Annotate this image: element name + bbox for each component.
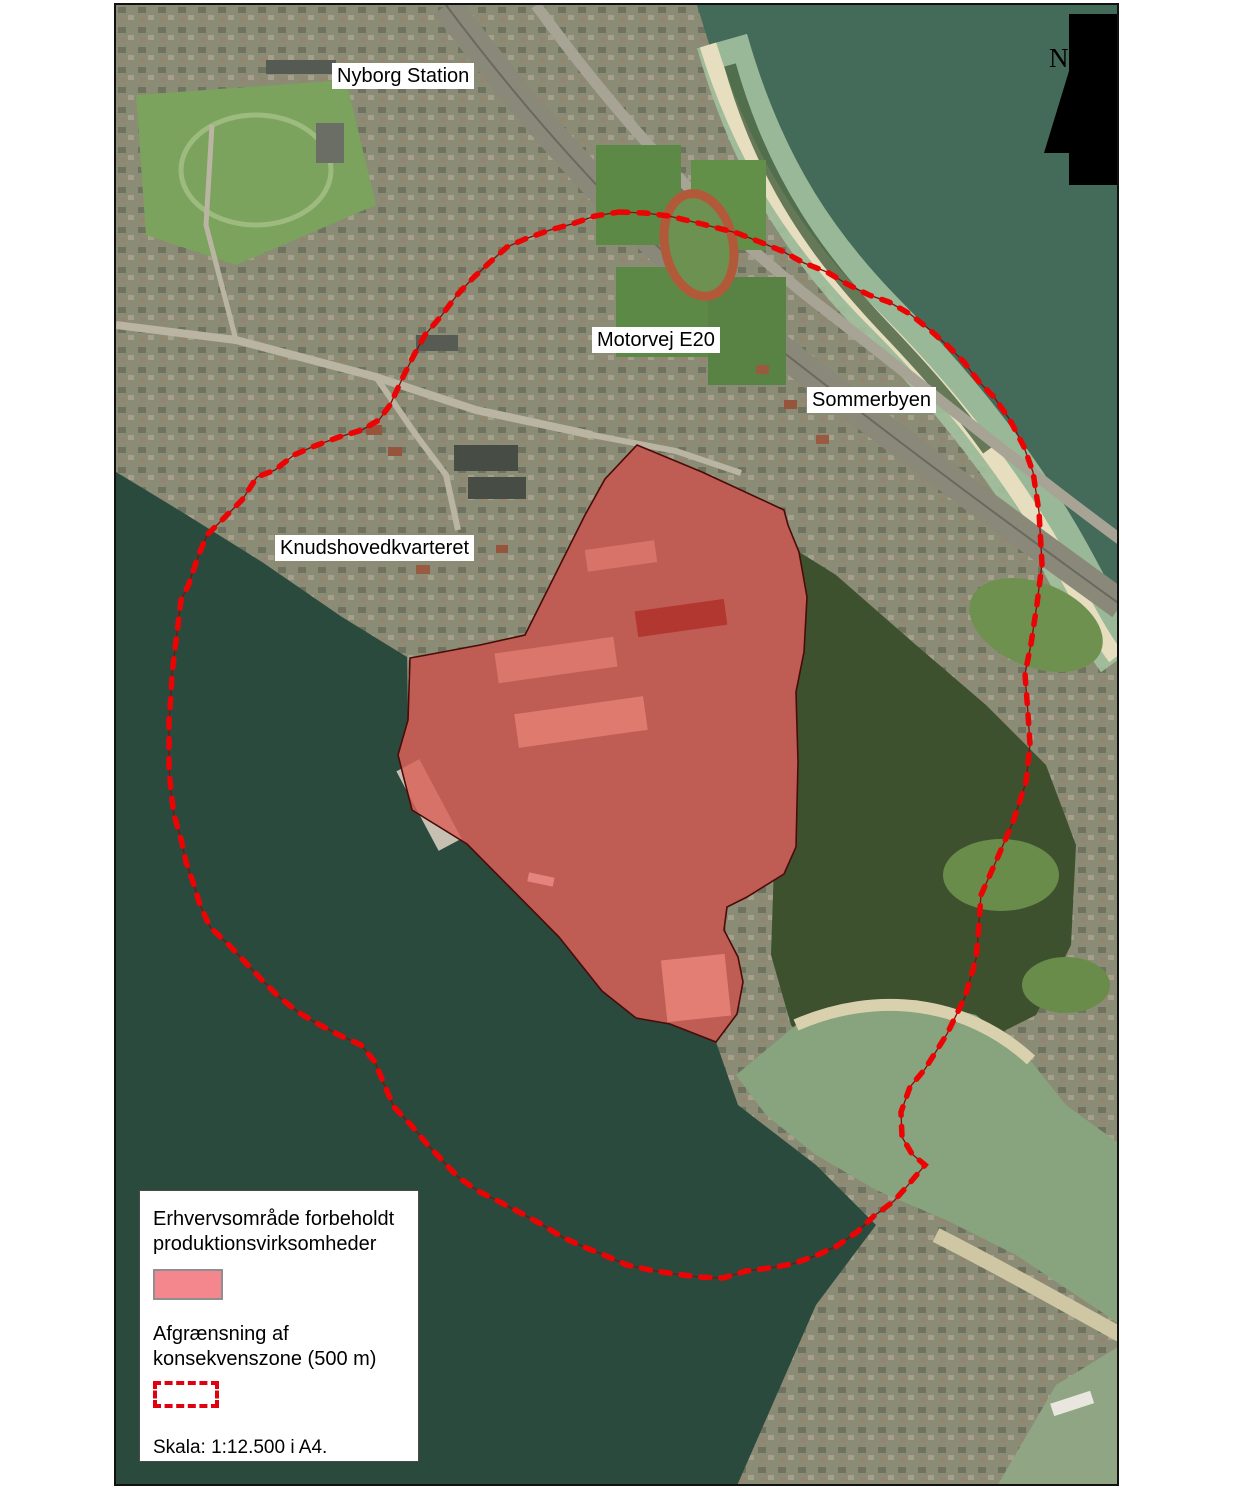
map-label-sommerbyen: Sommerbyen (807, 387, 936, 413)
legend-area-label-line1: Erhvervsområde forbeholdt (153, 1207, 406, 1232)
legend-zone-label-line1: Afgrænsning af (153, 1322, 406, 1347)
legend-zone-symbol (153, 1381, 219, 1408)
aerial-map: N Nyborg Station Motorvej E20 Sommerbyen… (114, 3, 1119, 1486)
legend-area-label-line2: produktionsvirksomheder (153, 1232, 406, 1257)
page: { "map": { "labels": [ { "id": "nyborg-s… (0, 0, 1241, 1492)
map-label-motorvej-e20: Motorvej E20 (592, 327, 720, 353)
legend-zone-label-line2: konsekvenszone (500 m) (153, 1347, 406, 1372)
north-letter: N (1049, 43, 1069, 73)
legend-scale-text: Skala: 1:12.500 i A4. (153, 1435, 406, 1460)
legend: Erhvervsområde forbeholdt produktionsvir… (139, 1190, 419, 1462)
golf-green-3 (1022, 957, 1110, 1013)
map-label-knudshovedkvarteret: Knudshovedkvarteret (275, 535, 474, 561)
legend-area-swatch (153, 1269, 223, 1300)
map-label-nyborg-station: Nyborg Station (332, 63, 474, 89)
